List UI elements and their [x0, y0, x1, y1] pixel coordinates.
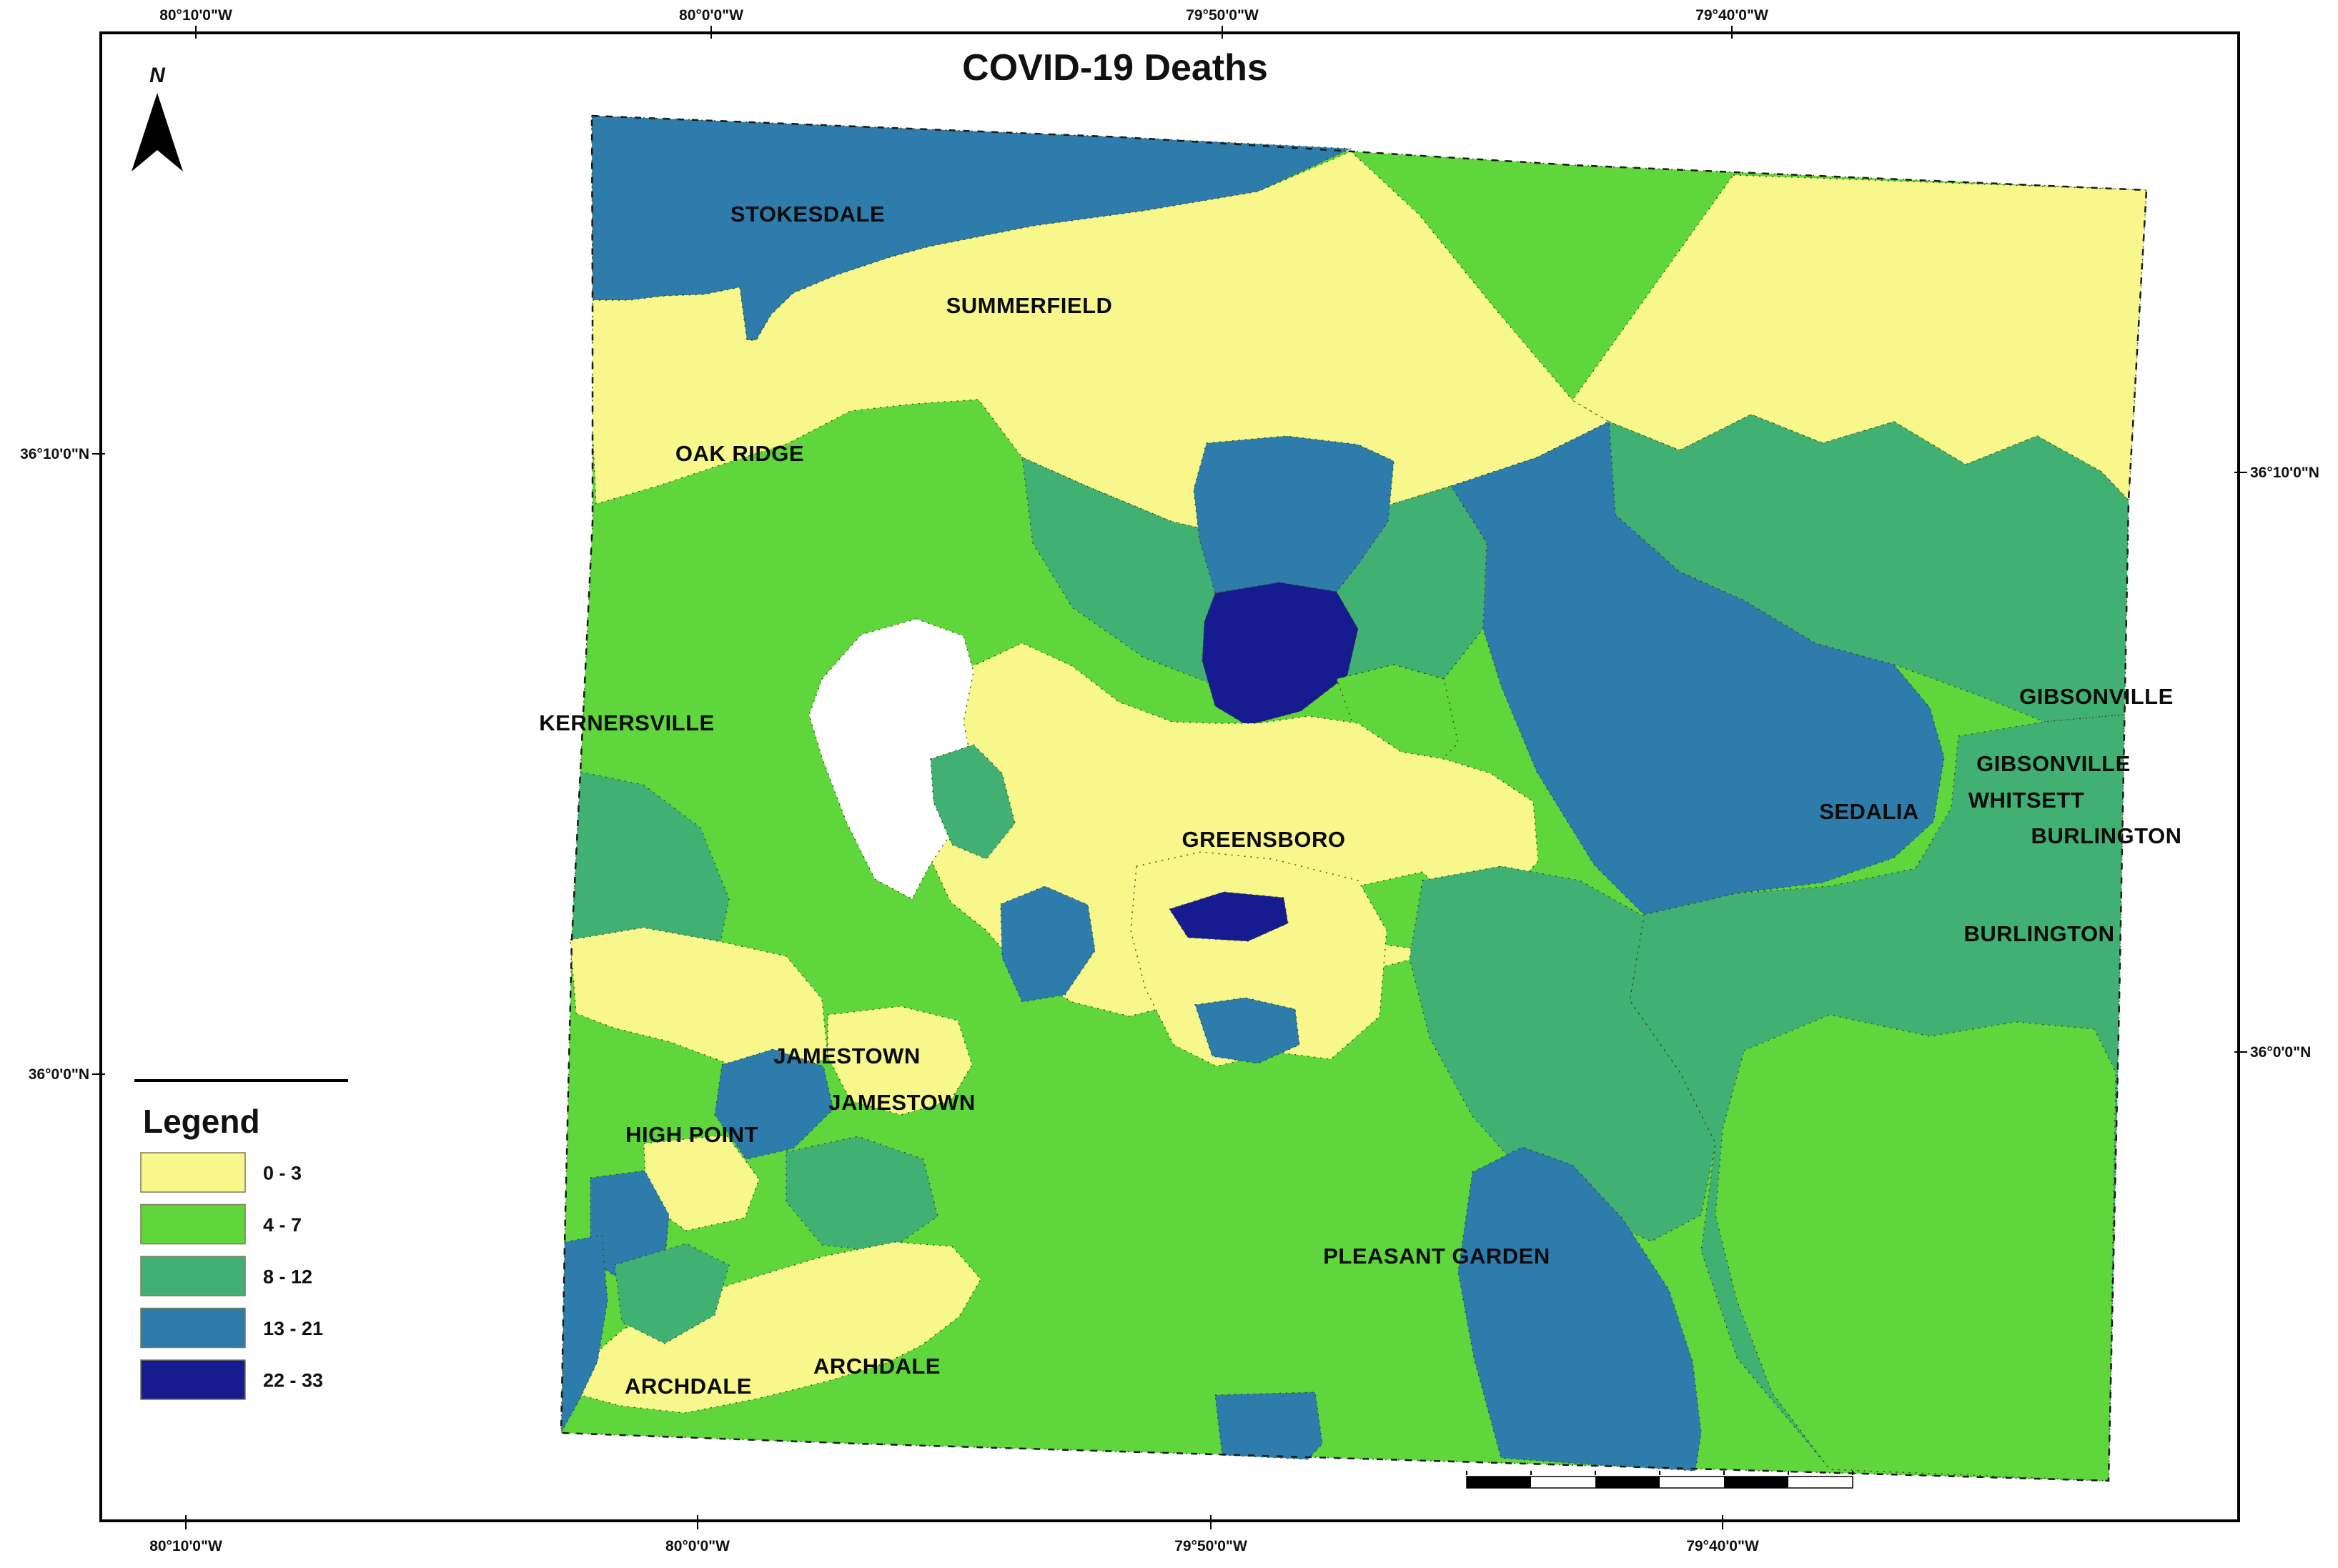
city-label-greensboro: GREENSBORO [1182, 827, 1346, 852]
legend-item-label: 13 - 21 [263, 1318, 323, 1339]
legend-item-label: 4 - 7 [263, 1214, 302, 1236]
north-arrow: N [132, 64, 183, 172]
scale-bar-segment [1467, 1477, 1531, 1488]
coord-label-bottom: 80°0'0"W [665, 1538, 730, 1554]
city-label-jamestown: JAMESTOWN [828, 1090, 975, 1115]
coord-label-top: 79°50'0"W [1186, 7, 1259, 24]
city-label-stokesdale: STOKESDALE [730, 202, 885, 227]
city-label-high-point: HIGH POINT [625, 1122, 758, 1147]
legend-item-label: 0 - 3 [263, 1163, 302, 1184]
north-arrow-icon [132, 93, 183, 172]
legend-title: Legend [143, 1103, 260, 1140]
coord-label-bottom: 80°10'0"W [149, 1538, 222, 1554]
scale-bar-segment [1595, 1477, 1660, 1488]
city-label-sedalia: SEDALIA [1819, 799, 1919, 824]
coord-label-bottom: 79°40'0"W [1686, 1538, 1759, 1554]
city-label-gibsonville: GIBSONVILLE [2019, 684, 2174, 709]
map-canvas: 80°10'0"W80°0'0"W79°50'0"W79°40'0"W80°10… [0, 0, 2338, 1568]
city-label-pleasant-garden: PLEASANT GARDEN [1323, 1244, 1550, 1269]
city-label-summerfield: SUMMERFIELD [946, 293, 1113, 318]
city-label-kernersville: KERNERSVILLE [539, 710, 714, 735]
scale-bar-segment [1724, 1477, 1788, 1488]
city-label-archdale: ARCHDALE [813, 1354, 941, 1379]
scale-bar [1467, 1471, 1853, 1488]
coord-label-bottom: 79°50'0"W [1174, 1538, 1247, 1554]
city-label-burlington: BURLINGTON [2031, 823, 2181, 848]
region-bottom-edge-blue [1215, 1392, 1322, 1459]
legend-items: 0 - 34 - 78 - 1213 - 2122 - 33 [141, 1153, 323, 1399]
city-label-oak-ridge: OAK RIDGE [675, 441, 804, 466]
city-label-archdale: ARCHDALE [625, 1374, 752, 1399]
coord-label-top: 79°40'0"W [1695, 7, 1768, 24]
legend-swatch-B [141, 1309, 245, 1348]
legend-item-label: 8 - 12 [263, 1266, 312, 1288]
coord-label-left: 36°0'0"N [29, 1066, 89, 1083]
map-title: COVID-19 Deaths [962, 47, 1268, 89]
legend: Legend 0 - 34 - 78 - 1213 - 2122 - 33 [134, 1081, 348, 1399]
legend-swatch-Y [141, 1153, 245, 1192]
coord-label-top: 80°0'0"W [679, 7, 743, 24]
coord-label-right: 36°10'0"N [2250, 465, 2319, 481]
legend-swatch-G [141, 1205, 245, 1244]
city-label-jamestown: JAMESTOWN [773, 1043, 920, 1068]
choropleth-regions [561, 116, 2146, 1481]
city-label-gibsonville: GIBSONVILLE [1976, 751, 2131, 776]
legend-swatch-N [141, 1360, 245, 1399]
coord-label-left: 36°10'0"N [20, 446, 89, 462]
legend-item-label: 22 - 33 [263, 1370, 323, 1391]
map-document: 80°10'0"W80°0'0"W79°50'0"W79°40'0"W80°10… [0, 0, 2338, 1568]
coord-label-top: 80°10'0"W [159, 7, 232, 24]
city-label-burlington: BURLINGTON [1963, 921, 2114, 946]
city-label-whitsett: WHITSETT [1968, 788, 2084, 813]
coord-label-right: 36°0'0"N [2250, 1044, 2311, 1061]
north-arrow-label: N [149, 64, 166, 87]
legend-swatch-T [141, 1256, 245, 1296]
